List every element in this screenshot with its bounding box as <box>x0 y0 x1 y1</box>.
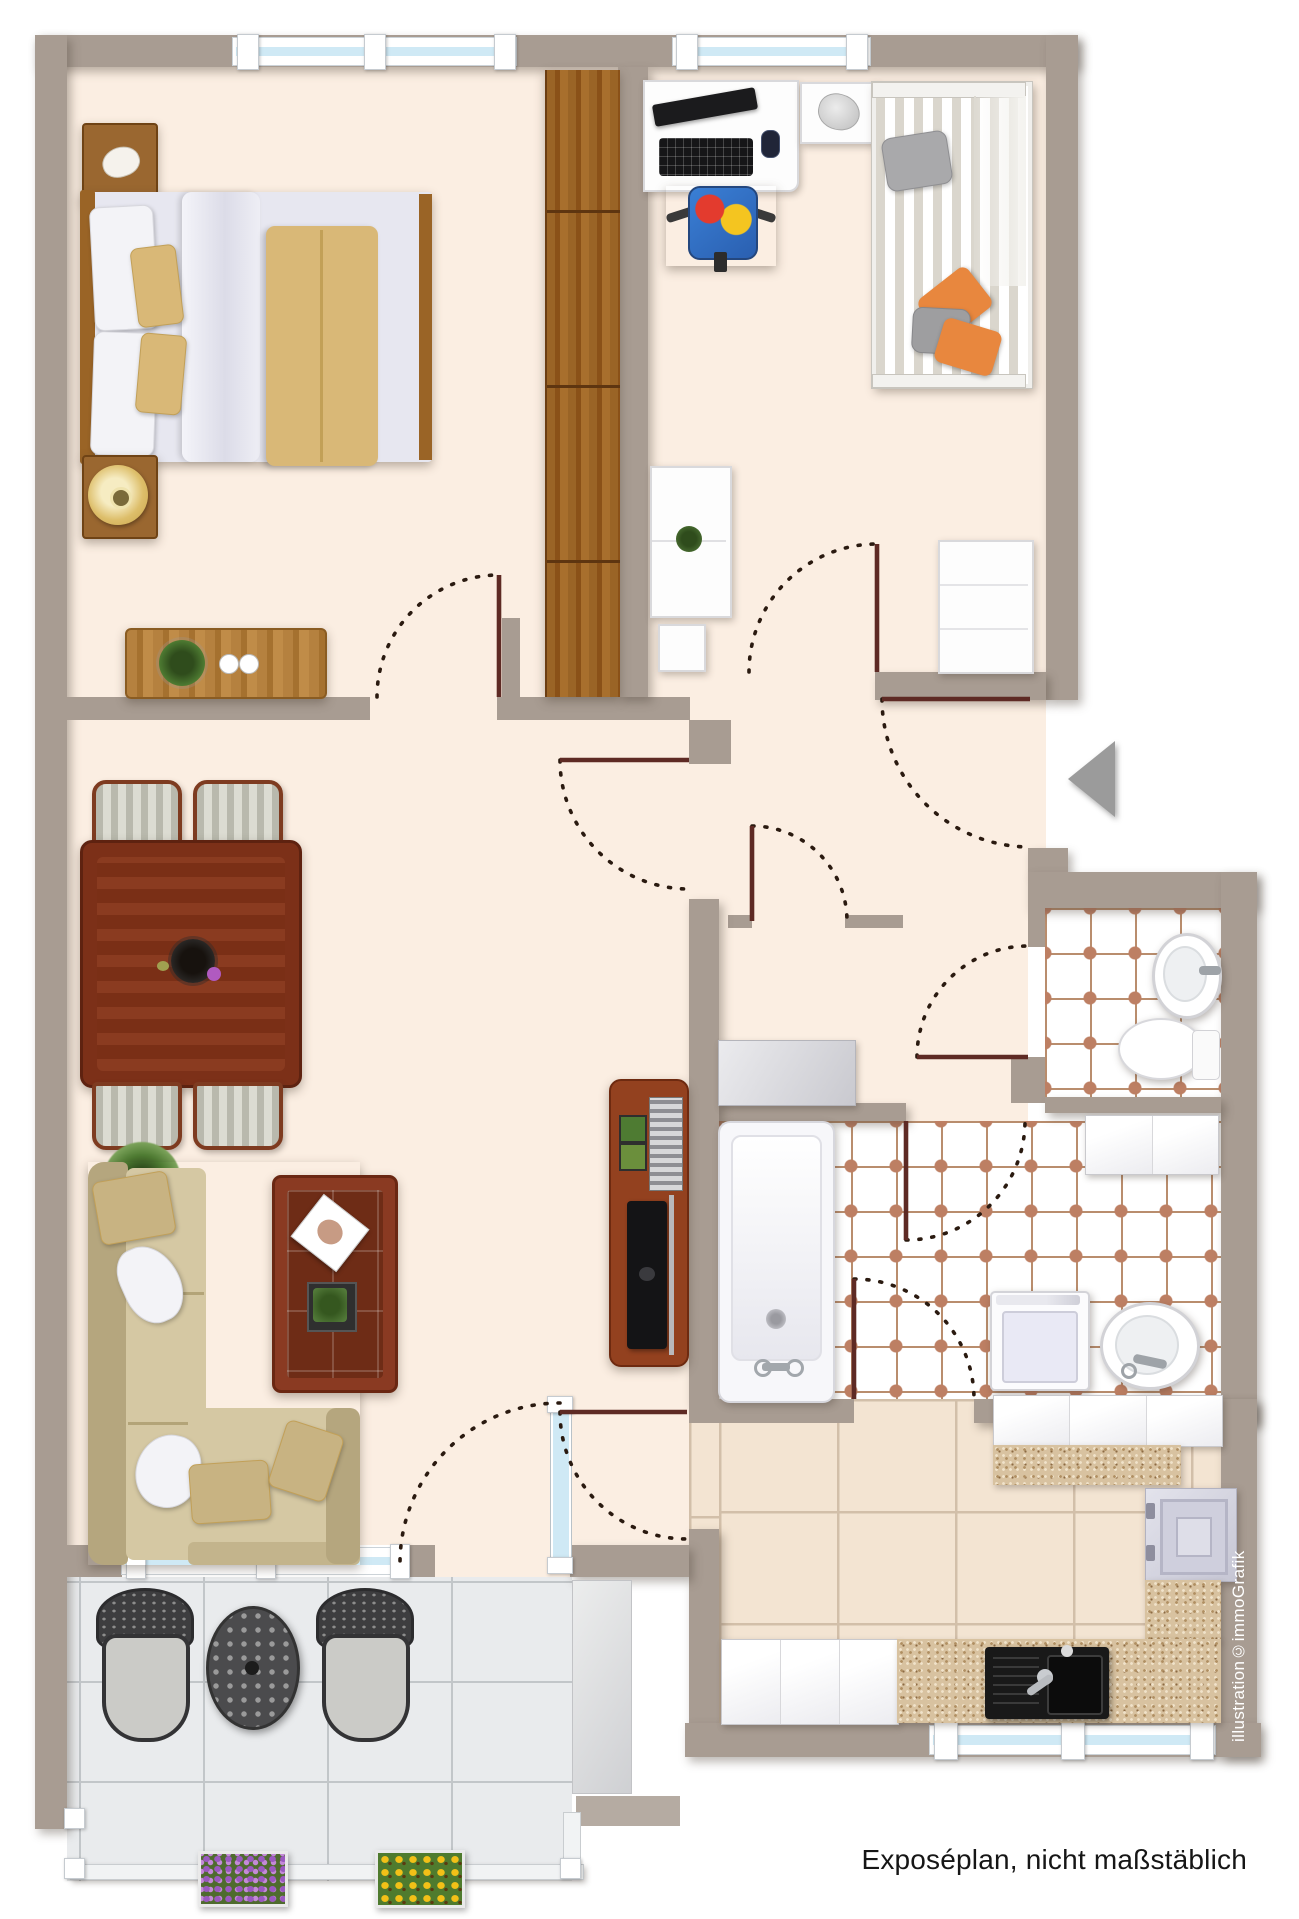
bath-door-swing <box>906 1121 1025 1240</box>
bedroom-door-swing <box>377 575 499 697</box>
hall-door-swing <box>560 760 689 889</box>
entry-door-swing <box>882 699 1030 847</box>
kidsroom-door-swing <box>749 544 877 672</box>
door-swing-overlay <box>0 0 1299 1919</box>
wc-door-swing <box>917 946 1028 1057</box>
bath-kitchen-door-swing <box>854 1279 974 1399</box>
living-door-swing <box>560 1412 687 1539</box>
corridor-door-swing <box>752 826 847 921</box>
entry-arrow-icon <box>1068 741 1115 817</box>
floorplan: illustration©immoGrafik Exposéplan, nich… <box>0 0 1299 1919</box>
plan-caption: Exposéplan, nicht maßstäblich <box>861 1844 1247 1876</box>
balcony-door-swing <box>400 1403 560 1563</box>
illustration-credit: illustration©immoGrafik <box>1224 1545 1254 1747</box>
